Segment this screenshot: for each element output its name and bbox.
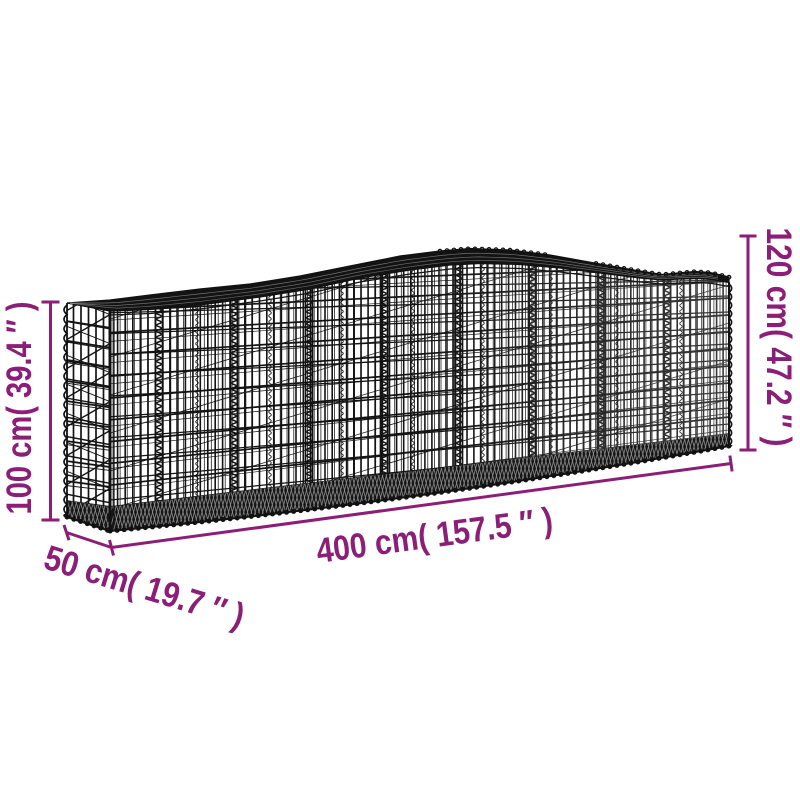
svg-text:100 cm( 39.4 ″ ): 100 cm( 39.4 ″ ) [0, 302, 39, 515]
svg-text:120 cm( 47.2 ″ ): 120 cm( 47.2 ″ ) [759, 228, 798, 447]
